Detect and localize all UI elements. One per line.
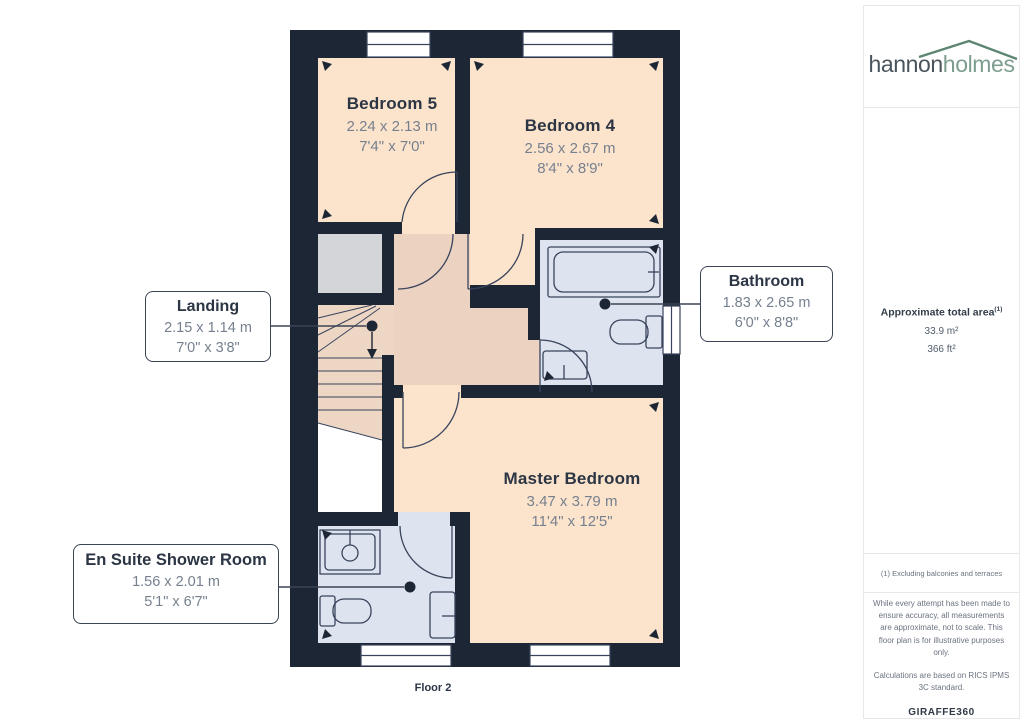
- room-name: Bedroom 4: [525, 116, 616, 136]
- room-dimensions-metric: 2.56 x 2.67 m: [525, 139, 616, 159]
- landing-floor: [394, 234, 470, 385]
- bedroom5-door-opening: [402, 222, 455, 234]
- stairs-opening: [382, 305, 394, 355]
- room-dimensions-metric: 3.47 x 3.79 m: [504, 492, 641, 512]
- agency-logo: hannonholmes: [868, 53, 1014, 75]
- callout-dimensions-imperial: 5'1" x 6'7": [74, 592, 278, 612]
- closet-floor: [318, 234, 382, 293]
- master-door-opening: [403, 385, 461, 398]
- ensuite-right-wall: [455, 526, 470, 643]
- window: [523, 32, 613, 57]
- bathroom-anchor-dot: [600, 299, 611, 310]
- brand-text-giraffe: GIRAFFE: [908, 707, 956, 718]
- room-label-bedroom-5: Bedroom 5 2.24 x 2.13 m 7'4" x 7'0": [347, 94, 438, 157]
- callout-dimensions-metric: 1.83 x 2.65 m: [701, 293, 832, 313]
- total-area-title: Approximate total area(1): [881, 306, 1003, 319]
- callout-dimensions-metric: 1.56 x 2.01 m: [74, 572, 278, 592]
- brand-text-360: 360: [956, 707, 975, 718]
- total-area-metric: 33.9 m²: [925, 326, 959, 337]
- logo-text-holmes: holmes: [943, 51, 1015, 77]
- window: [530, 645, 610, 666]
- agency-logo-panel: hannonholmes: [863, 5, 1020, 108]
- callout-bathroom: Bathroom 1.83 x 2.65 m 6'0" x 8'8": [700, 266, 833, 342]
- bathroom-floor: [540, 240, 663, 385]
- callout-dimensions-metric: 2.15 x 1.14 m: [146, 318, 270, 338]
- floor-label: Floor 2: [415, 682, 452, 694]
- window: [361, 645, 451, 666]
- callout-name: Landing: [146, 298, 270, 316]
- ensuite-door-opening: [398, 512, 450, 526]
- landing-floor-ext: [470, 308, 528, 385]
- total-area-imperial: 366 ft²: [927, 344, 955, 355]
- total-area-panel: Approximate total area(1) 33.9 m² 366 ft…: [863, 107, 1020, 554]
- disclaimer-text-1: While every attempt has been made to ens…: [873, 598, 1010, 660]
- footnote-panel: (1) Excluding balconies and terraces: [863, 553, 1020, 593]
- window: [663, 306, 680, 354]
- room-name: Bedroom 5: [347, 94, 438, 114]
- callout-dimensions-imperial: 6'0" x 8'8": [701, 313, 832, 333]
- room-dimensions-metric: 2.24 x 2.13 m: [347, 117, 438, 137]
- room-dimensions-imperial: 7'4" x 7'0": [347, 137, 438, 157]
- callout-en-suite-shower-room: En Suite Shower Room 1.56 x 2.01 m 5'1" …: [73, 544, 279, 624]
- ensuite-anchor-dot: [405, 582, 416, 593]
- landing-anchor-dot: [367, 321, 378, 332]
- giraffe360-brand: GIRAFFE360: [908, 707, 975, 718]
- footnote-marker: (1): [994, 306, 1002, 313]
- window: [367, 32, 430, 57]
- bathroom-door-opening: [528, 340, 540, 385]
- callout-dimensions-imperial: 7'0" x 3'8": [146, 338, 270, 358]
- callout-landing: Landing 2.15 x 1.14 m 7'0" x 3'8": [145, 291, 271, 362]
- disclaimer-panel: While every attempt has been made to ens…: [863, 592, 1020, 719]
- room-dimensions-imperial: 11'4" x 12'5": [504, 512, 641, 532]
- footnote-text: (1) Excluding balconies and terraces: [881, 569, 1002, 578]
- callout-name: Bathroom: [701, 273, 832, 291]
- logo-text-hannon: hannon: [868, 51, 942, 77]
- room-label-bedroom-4: Bedroom 4 2.56 x 2.67 m 8'4" x 8'9": [525, 116, 616, 179]
- ensuite-floor: [318, 526, 455, 643]
- room-name: Master Bedroom: [504, 469, 641, 489]
- room-dimensions-imperial: 8'4" x 8'9": [525, 159, 616, 179]
- disclaimer-text-2: Calculations are based on RICS IPMS 3C s…: [873, 670, 1010, 695]
- callout-name: En Suite Shower Room: [74, 551, 278, 570]
- room-label-master-bedroom: Master Bedroom 3.47 x 3.79 m 11'4" x 12'…: [504, 469, 641, 532]
